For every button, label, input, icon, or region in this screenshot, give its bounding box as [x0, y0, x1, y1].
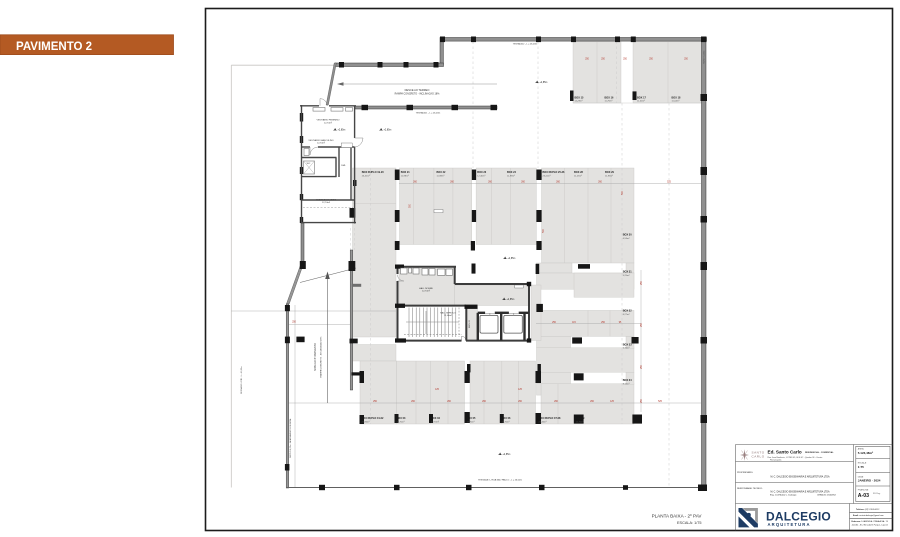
svg-text:RESIDENCIAL - COMERCIAL: RESIDENCIAL - COMERCIAL [805, 451, 834, 454]
svg-text:22,46m²: 22,46m² [539, 420, 547, 423]
svg-text:BOX DUPLO 19-20: BOX DUPLO 19-20 [362, 171, 385, 174]
svg-text:11,04m²: 11,04m² [637, 100, 645, 103]
svg-text:BOX 06: BOX 06 [502, 417, 512, 420]
svg-text:BOX 32: BOX 32 [623, 310, 633, 313]
svg-text:A-03: A-03 [858, 493, 869, 499]
svg-text:12,70m²: 12,70m² [576, 420, 584, 423]
svg-text:11,96m²: 11,96m² [605, 174, 613, 177]
svg-text:BOX 31: BOX 31 [623, 271, 633, 274]
svg-text:BOX 16: BOX 16 [605, 96, 615, 99]
svg-text:BOX 34: BOX 34 [623, 379, 633, 382]
svg-text:11,76m²: 11,76m² [605, 100, 613, 103]
svg-text:VESTIARIO FEMININO: VESTIARIO FEMININO [317, 119, 340, 122]
svg-text:ESCALA: 1/75: ESCALA: 1/75 [677, 521, 701, 525]
svg-text:PAVIMENTO 2: PAVIMENTO 2 [16, 41, 92, 53]
svg-text:Rua Jose Bonifacio, LOTES 05,: Rua Jose Bonifacio, LOTES 05, 06 E 07 - … [768, 456, 824, 459]
svg-text:6,16m²: 6,16m² [623, 347, 630, 350]
svg-text:12,74m²: 12,74m² [422, 290, 430, 293]
svg-text:TESTADA 2 - L = 26,00m: TESTADA 2 - L = 26,00m [513, 43, 538, 46]
svg-text:Endereco: 14 AVENIDA - PRAIA A: Endereco: 14 AVENIDA - PRAIA ALVA - 74 [852, 520, 888, 523]
svg-text:+2,85m: +2,85m [503, 454, 511, 456]
svg-text:Ed. Santo Carlo: Ed. Santo Carlo [768, 449, 802, 454]
svg-text:11,25m²: 11,25m² [574, 174, 582, 177]
svg-text:11,04m²: 11,04m² [672, 100, 680, 103]
svg-text:BOX 24: BOX 24 [507, 171, 517, 174]
svg-text:HALL SERVICO: HALL SERVICO [440, 311, 456, 314]
svg-text:Joinville - SC, Mercado B. Par: Joinville - SC, Mercado B. Parque - Loja… [852, 524, 888, 527]
svg-text:12,30m²: 12,30m² [477, 174, 485, 177]
svg-text:6,27m²: 6,27m² [623, 313, 630, 316]
svg-text:Email: contato.dalcegio@gmail.: Email: contato.dalcegio@gmail.com [853, 514, 884, 517]
svg-text:11,98m²: 11,98m² [401, 174, 409, 177]
svg-text:+2,85m: +2,85m [338, 130, 346, 132]
svg-text:23,41m²: 23,41m² [362, 174, 370, 177]
svg-text:5,25m²: 5,25m² [623, 274, 630, 277]
svg-text:BOX DUPLO 25-26: BOX DUPLO 25-26 [543, 171, 566, 174]
svg-text:RECUO 4,00m - AFASTAMENTO FRON: RECUO 4,00m - AFASTAMENTO FRONTAL [289, 417, 292, 457]
svg-text:BOX 29: BOX 29 [605, 171, 615, 174]
svg-text:DIVISA DO LOTE - L = 40,00m: DIVISA DO LOTE - L = 40,00m [240, 366, 243, 394]
svg-text:BOX 18: BOX 18 [672, 96, 682, 99]
svg-text:PLANTA BAIXA - 2º PAV: PLANTA BAIXA - 2º PAV [652, 514, 703, 519]
svg-text:JANEIRO - 2024: JANEIRO - 2024 [858, 479, 881, 483]
svg-text:BOX 21: BOX 21 [401, 171, 411, 174]
svg-text:HALL NOBRE: HALL NOBRE [419, 287, 433, 290]
svg-text:M. C. DALCEGIO ENGENHARIA E AR: M. C. DALCEGIO ENGENHARIA E ARQUITETURA … [770, 476, 830, 479]
svg-text:RAMPA CONCRETO - INCLINACAO 18: RAMPA CONCRETO - INCLINACAO 18% [320, 337, 323, 378]
svg-text:+2,85m: +2,85m [507, 299, 515, 301]
svg-text:5.123,48m²: 5.123,48m² [858, 451, 873, 455]
svg-text:BOX 17: BOX 17 [637, 96, 647, 99]
svg-text:BOX 04: BOX 04 [431, 417, 441, 420]
svg-text:BOX 23: BOX 23 [477, 171, 487, 174]
svg-text:12,70m²: 12,70m² [502, 420, 510, 423]
svg-text:BOX 03: BOX 03 [397, 417, 407, 420]
svg-text:12,70m²: 12,70m² [431, 420, 439, 423]
svg-text:TESTADA 1 - L = 26,00m: TESTADA 1 - L = 26,00m [416, 112, 441, 115]
svg-text:ARQUITETURA: ARQUITETURA [768, 522, 811, 527]
svg-text:12,70m²: 12,70m² [397, 420, 405, 423]
svg-text:8,14m²: 8,14m² [623, 383, 630, 386]
svg-text:BOX 09: BOX 09 [576, 417, 586, 420]
svg-text:+2,85m: +2,85m [540, 82, 548, 84]
svg-text:RAMPA CONCRETO - INCLINACAO 18: RAMPA CONCRETO - INCLINACAO 18% [395, 93, 441, 96]
svg-text:BOX 22: BOX 22 [437, 171, 447, 174]
svg-text:11,04m²: 11,04m² [444, 314, 452, 317]
svg-text:Eng. Civil Mabio C. Dalcegio: Eng. Civil Mabio C. Dalcegio [770, 495, 797, 497]
svg-text:WC: WC [307, 163, 311, 165]
svg-text:DML: DML [341, 165, 346, 167]
svg-text:12,74m²: 12,74m² [324, 121, 332, 124]
svg-text:+2,85m: +2,85m [508, 258, 516, 260]
svg-text:TESTADA 3 - RUA SAO PAULO - L: TESTADA 3 - RUA SAO PAULO - L = 26,00m [478, 479, 522, 482]
svg-text:PRANCHA:: PRANCHA: [858, 488, 869, 491]
svg-text:BOX 30: BOX 30 [623, 234, 633, 237]
svg-text:12,29m²: 12,29m² [575, 100, 583, 103]
svg-text:Telefone: (47) 9 9169-4512: Telefone: (47) 9 9169-4512 [856, 509, 879, 511]
svg-text:Florianopolis: Florianopolis [770, 460, 781, 462]
svg-text:12,74m²: 12,74m² [322, 201, 330, 204]
svg-text:12,70m²: 12,70m² [467, 420, 475, 423]
svg-text:SOBE AO 3º PAVIMENTO: SOBE AO 3º PAVIMENTO [313, 343, 317, 371]
svg-text:BOX 15: BOX 15 [575, 96, 585, 99]
svg-text:BOX DUPLO 07-08: BOX DUPLO 07-08 [539, 417, 562, 420]
svg-text:CARLO: CARLO [752, 455, 765, 459]
svg-text:MURO H=2,00m: MURO H=2,00m [704, 50, 706, 64]
svg-text:PROPRIETARIO:: PROPRIETARIO: [737, 471, 754, 474]
svg-text:BOX 33: BOX 33 [623, 343, 633, 346]
svg-text:11,98m²: 11,98m² [507, 174, 515, 177]
svg-text:22,86m²: 22,86m² [362, 420, 370, 423]
svg-text:+2,85m: +2,85m [384, 130, 392, 132]
svg-text:ELEV. 01: ELEV. 01 [469, 320, 471, 328]
svg-text:BOX 05: BOX 05 [467, 417, 477, 420]
svg-text:RESPONSAVEL TECNICO:: RESPONSAVEL TECNICO: [737, 487, 763, 490]
svg-text:M. C. DALCEGIO ENGENHARIA E AR: M. C. DALCEGIO ENGENHARIA E ARQUITETURA … [770, 490, 830, 493]
svg-text:3/9 Pag.: 3/9 Pag. [873, 493, 881, 495]
svg-text:11,98m²: 11,98m² [437, 174, 445, 177]
svg-text:VESTIARIO MASCULINO: VESTIARIO MASCULINO [308, 139, 334, 142]
svg-text:DESCE AO TERREO: DESCE AO TERREO [405, 88, 430, 92]
svg-text:12,74m²: 12,74m² [317, 142, 325, 145]
svg-text:BOX 28: BOX 28 [574, 171, 584, 174]
svg-text:1:75: 1:75 [858, 465, 864, 469]
svg-text:6,53m²: 6,53m² [623, 237, 630, 240]
svg-text:GUARDA VOLUMES: GUARDA VOLUMES [316, 198, 337, 201]
svg-text:23,41m²: 23,41m² [543, 174, 551, 177]
svg-text:CREA-SC 154049-8: CREA-SC 154049-8 [817, 494, 837, 497]
svg-text:BOX DUPLO 01-02: BOX DUPLO 01-02 [362, 417, 385, 420]
